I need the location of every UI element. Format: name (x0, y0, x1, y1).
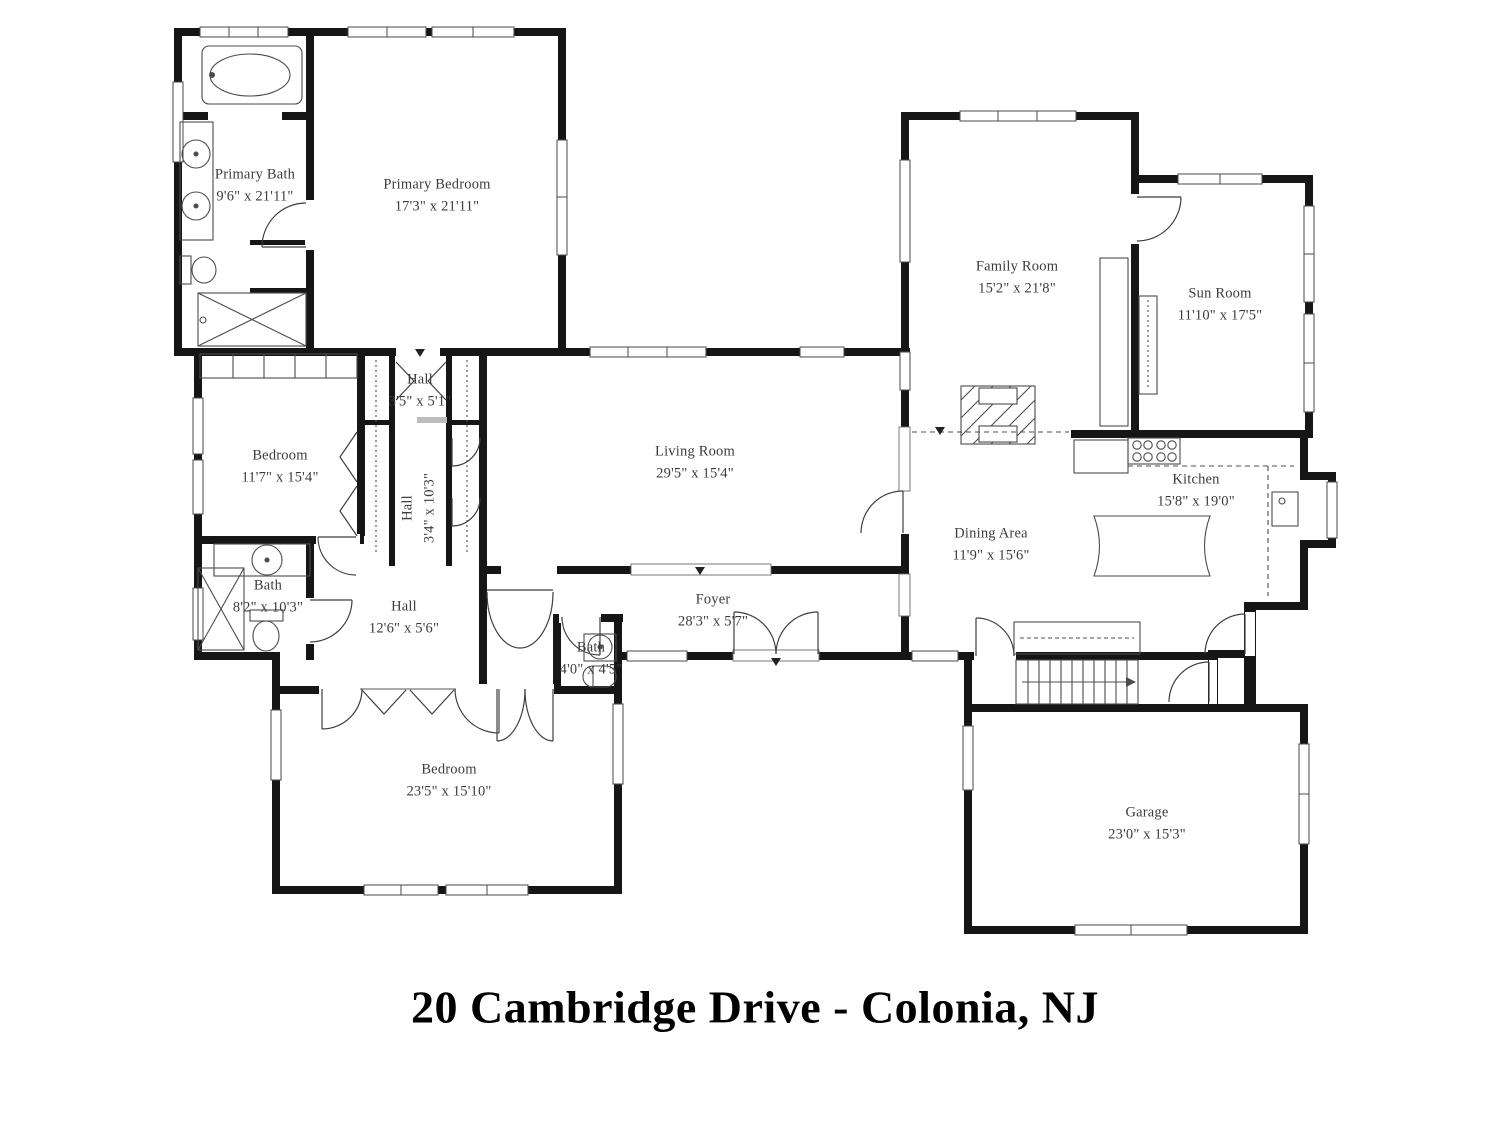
room-name: Primary Bedroom (383, 174, 490, 196)
fireplace (961, 386, 1035, 444)
hall-threshold (417, 417, 447, 423)
room-name: Foyer (678, 589, 748, 611)
room-label-dining-area: Dining Area 11'9" x 15'6" (952, 523, 1029, 567)
room-dims: 17'3" x 21'11" (383, 196, 490, 218)
room-dims: 11'10" x 17'5" (1178, 305, 1263, 327)
room-label-sun-room: Sun Room 11'10" x 17'5" (1178, 283, 1263, 327)
room-label-bedroom-mid: Bedroom 11'7" x 15'4" (241, 445, 318, 489)
room-name: Bath (560, 637, 623, 659)
room-label-hall-lower: Hall 12'6" x 5'6" (369, 596, 439, 640)
room-label-foyer: Foyer 28'3" x 5'7" (678, 589, 748, 633)
room-label-kitchen: Kitchen 15'8" x 19'0" (1157, 469, 1235, 513)
room-dims: 29'5" x 15'4" (655, 463, 735, 485)
room-dims: 15'2" x 21'8" (976, 278, 1058, 300)
kitchen-back-door (1205, 614, 1245, 654)
lower-bedroom-double-doors (497, 689, 553, 741)
room-label-bath-main: Bath 8'2" x 10'3" (233, 575, 303, 619)
primary-shower (198, 293, 306, 346)
room-dims: 11'7" x 15'4" (241, 467, 318, 489)
sun-room-door (1137, 197, 1181, 241)
room-name: Garage (1108, 802, 1186, 824)
room-name: Living Room (655, 441, 735, 463)
room-name: Primary Bath (215, 164, 295, 186)
room-label-primary-bath: Primary Bath 9'6" x 21'11" (215, 164, 295, 208)
room-name: Hall (369, 596, 439, 618)
room-name: Dining Area (952, 523, 1029, 545)
room-label-hall-mid: Hall 3'4" x 10'3" (397, 473, 441, 543)
lower-bedroom-door-right (455, 689, 499, 733)
room-dims: 23'0" x 15'3" (1108, 824, 1186, 846)
dining-buffet (1014, 622, 1140, 654)
room-name: Kitchen (1157, 469, 1235, 491)
plan-title: 20 Cambridge Drive - Colonia, NJ (411, 981, 1099, 1034)
closet-shelving (200, 354, 357, 378)
room-dims: 28'3" x 5'7" (678, 611, 748, 633)
main-bath-vanity (214, 544, 310, 576)
room-dims: 9'6" x 21'11" (215, 186, 295, 208)
room-dims: 4'0" x 4'5" (560, 659, 623, 681)
room-name: Bedroom (241, 445, 318, 467)
primary-toilet (180, 256, 216, 284)
refrigerator (1074, 440, 1128, 473)
hall-closet-doors (452, 438, 480, 526)
room-dims: 23'5" x 15'10" (406, 781, 491, 803)
room-label-family-room: Family Room 15'2" x 21'8" (976, 256, 1058, 300)
stairs (1016, 660, 1138, 704)
room-name: Bath (233, 575, 303, 597)
room-name: Sun Room (1178, 283, 1263, 305)
room-name: Family Room (976, 256, 1058, 278)
room-name: Bedroom (406, 759, 491, 781)
room-label-hall-upper: Hall 3'5" x 5'1" (389, 369, 452, 413)
garage-hall-door (1169, 662, 1209, 702)
kitchen-island (1094, 516, 1210, 576)
room-dims: 3'4" x 10'3" (419, 473, 441, 543)
kitchen-sink (1272, 492, 1298, 526)
room-label-garage: Garage 23'0" x 15'3" (1108, 802, 1186, 846)
primary-vanity-sinks (180, 122, 213, 240)
floor-plan-page: Primary Bath 9'6" x 21'11" Primary Bedro… (0, 0, 1500, 1125)
room-dims: 8'2" x 10'3" (233, 597, 303, 619)
room-dims: 15'8" x 19'0" (1157, 491, 1235, 513)
room-label-bath-small: Bath 4'0" x 4'5" (560, 637, 623, 681)
room-dims: 11'9" x 15'6" (952, 545, 1029, 567)
cooktop (1128, 438, 1180, 464)
room-label-living-room: Living Room 29'5" x 15'4" (655, 441, 735, 485)
room-name: Hall (397, 473, 419, 543)
room-label-primary-bedroom: Primary Bedroom 17'3" x 21'11" (383, 174, 490, 218)
room-dims: 12'6" x 5'6" (369, 618, 439, 640)
room-name: Hall (389, 369, 452, 391)
bathtub (202, 46, 302, 104)
sunroom-cabinets (1100, 258, 1157, 426)
room-dims: 3'5" x 5'1" (389, 391, 452, 413)
foyer-closet-doors (487, 590, 553, 648)
living-room-door (861, 491, 903, 533)
main-bath-door (310, 600, 352, 642)
room-label-bedroom-lower: Bedroom 23'5" x 15'10" (406, 759, 491, 803)
